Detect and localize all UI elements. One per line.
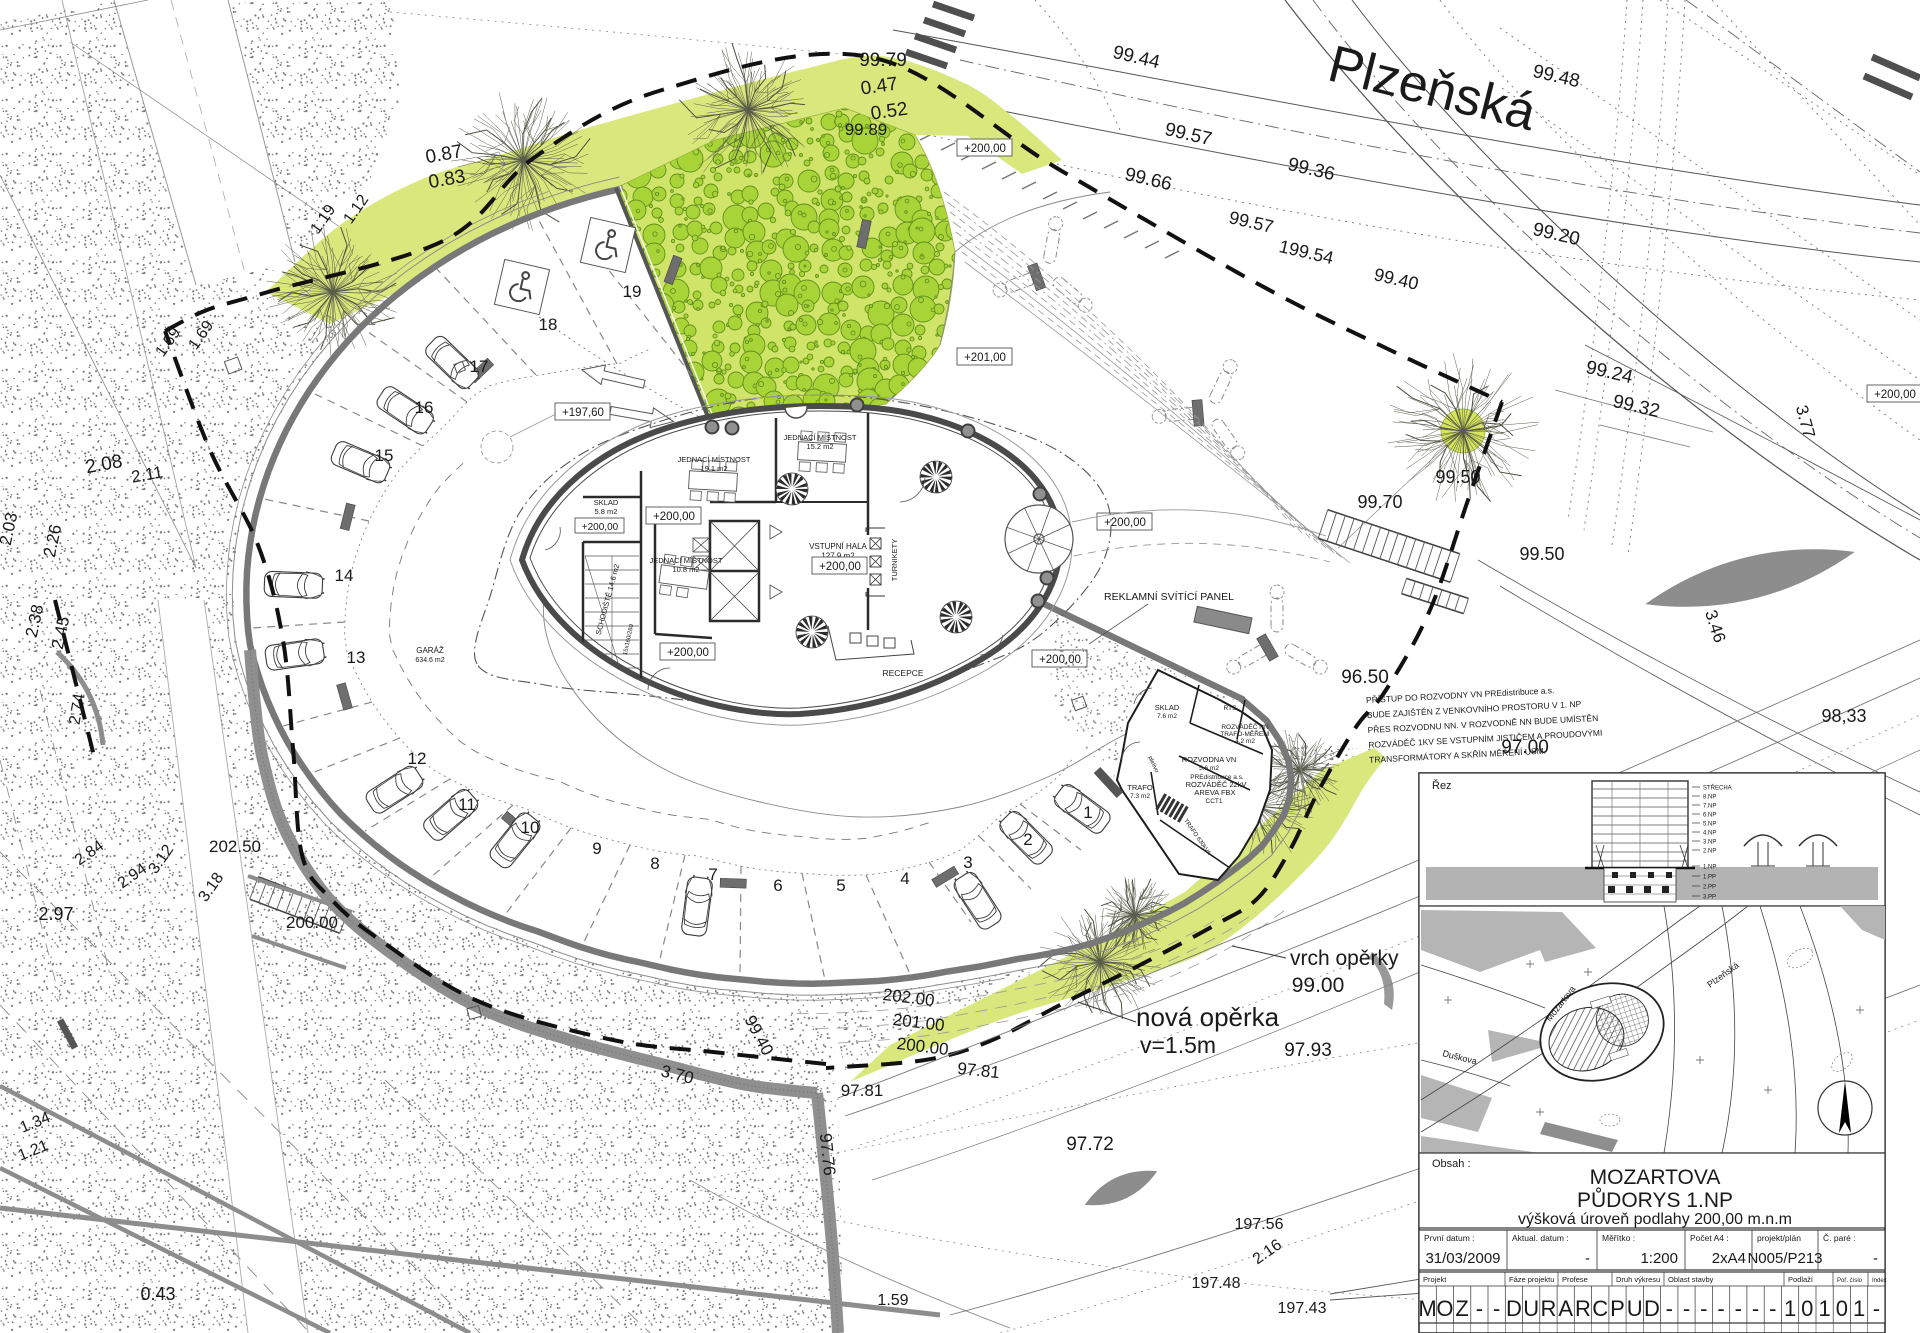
svg-text:19: 19 xyxy=(623,282,642,301)
svg-text:1: 1 xyxy=(1853,1296,1865,1321)
svg-text:+200,00: +200,00 xyxy=(964,143,1006,155)
svg-text:-: - xyxy=(1735,1296,1742,1321)
svg-text:+201,00: +201,00 xyxy=(964,352,1006,364)
svg-text:3: 3 xyxy=(963,853,972,872)
svg-text:96.50: 96.50 xyxy=(1341,667,1389,688)
svg-text:8: 8 xyxy=(650,854,659,873)
svg-text:1.NP: 1.NP xyxy=(1703,865,1716,871)
svg-text:98,33: 98,33 xyxy=(1821,706,1866,726)
svg-text:JEDNACÍ MÍSTNOST: JEDNACÍ MÍSTNOST xyxy=(784,433,857,442)
svg-text:7.6 m2: 7.6 m2 xyxy=(1157,713,1177,720)
svg-text:97.72: 97.72 xyxy=(1066,1134,1114,1155)
svg-text:Podlaží: Podlaží xyxy=(1788,1275,1814,1284)
svg-text:TRAFO: TRAFO xyxy=(1127,783,1153,792)
svg-text:634.6 m2: 634.6 m2 xyxy=(415,657,444,664)
svg-text:C: C xyxy=(1592,1296,1608,1321)
svg-text:ROZVODNA VN: ROZVODNA VN xyxy=(1182,755,1237,764)
svg-text:ROZVÁDĚČ NN: ROZVÁDĚČ NN xyxy=(1221,722,1269,731)
svg-text:PŮDORYS 1.NP: PŮDORYS 1.NP xyxy=(1577,1188,1733,1212)
svg-text:0: 0 xyxy=(1836,1296,1848,1321)
svg-text:200.00: 200.00 xyxy=(286,913,338,932)
svg-text:D: D xyxy=(1644,1296,1660,1321)
svg-text:5.8 m2: 5.8 m2 xyxy=(595,507,618,516)
svg-text:N005/P213: N005/P213 xyxy=(1747,1250,1822,1267)
svg-text:-: - xyxy=(1873,1250,1878,1267)
svg-text:4.2 m2: 4.2 m2 xyxy=(1235,738,1255,745)
svg-text:Profese: Profese xyxy=(1562,1275,1588,1284)
svg-text:31/03/2009: 31/03/2009 xyxy=(1425,1250,1500,1267)
svg-text:REKLAMNÍ SVÍTÍCÍ PANEL: REKLAMNÍ SVÍTÍCÍ PANEL xyxy=(1104,590,1234,603)
svg-text:P: P xyxy=(1610,1296,1625,1321)
svg-text:99.70: 99.70 xyxy=(1357,492,1402,512)
svg-text:1: 1 xyxy=(1818,1296,1830,1321)
svg-text:-: - xyxy=(1769,1296,1776,1321)
svg-text:197.43: 197.43 xyxy=(1278,1300,1327,1317)
svg-text:projekt/plán: projekt/plán xyxy=(1757,1233,1801,1243)
svg-text:7: 7 xyxy=(708,865,717,884)
svg-text:-: - xyxy=(1585,1250,1590,1267)
svg-text:TRAFO-MĚŘENÍ: TRAFO-MĚŘENÍ xyxy=(1220,729,1270,738)
svg-text:A: A xyxy=(1558,1296,1573,1321)
svg-text:1.59: 1.59 xyxy=(877,1292,908,1309)
svg-text:7.NP: 7.NP xyxy=(1703,804,1716,810)
svg-text:MOZARTOVA: MOZARTOVA xyxy=(1590,1166,1721,1189)
svg-text:M: M xyxy=(1418,1296,1436,1321)
svg-text:AREVA FBX: AREVA FBX xyxy=(1194,788,1235,797)
svg-text:+197,60: +197,60 xyxy=(562,407,604,419)
svg-text:+200,00: +200,00 xyxy=(819,561,861,573)
svg-text:202.50: 202.50 xyxy=(209,837,261,856)
svg-text:1: 1 xyxy=(1784,1296,1796,1321)
svg-text:Měřítko :: Měřítko : xyxy=(1602,1233,1635,1243)
svg-text:1.PP: 1.PP xyxy=(1703,875,1716,881)
svg-text:0.43: 0.43 xyxy=(140,1284,175,1304)
svg-text:výšková úroveň podlahy 200,00: výšková úroveň podlahy 200,00 m.n.m xyxy=(1518,1211,1792,1228)
svg-text:Počet A4 :: Počet A4 : xyxy=(1690,1233,1729,1243)
svg-text:3.PP: 3.PP xyxy=(1703,895,1716,901)
svg-text:4: 4 xyxy=(900,869,909,888)
svg-text:9: 9 xyxy=(592,839,601,858)
svg-text:-: - xyxy=(1700,1296,1707,1321)
svg-text:Z: Z xyxy=(1455,1296,1468,1321)
svg-text:Druh výkresu: Druh výkresu xyxy=(1616,1275,1660,1284)
svg-text:99.50: 99.50 xyxy=(1519,544,1564,564)
svg-text:Oblast stavby: Oblast stavby xyxy=(1668,1275,1714,1284)
svg-text:197.56: 197.56 xyxy=(1235,1216,1284,1233)
svg-text:Obsah :: Obsah : xyxy=(1432,1158,1471,1170)
svg-text:Fáze projektu: Fáze projektu xyxy=(1509,1275,1554,1284)
svg-text:1: 1 xyxy=(1083,803,1092,822)
svg-text:JEDNACÍ MÍSTNOST: JEDNACÍ MÍSTNOST xyxy=(678,455,751,464)
svg-text:10: 10 xyxy=(521,818,540,837)
svg-text:-: - xyxy=(1666,1296,1673,1321)
svg-text:D: D xyxy=(1506,1296,1522,1321)
svg-text:97.81: 97.81 xyxy=(841,1081,884,1100)
svg-text:-: - xyxy=(1873,1296,1880,1321)
svg-text:2.NP: 2.NP xyxy=(1703,849,1716,855)
svg-text:15: 15 xyxy=(375,446,394,465)
svg-text:+200,00: +200,00 xyxy=(582,522,619,533)
svg-text:GARÁŽ: GARÁŽ xyxy=(416,646,444,655)
svg-text:Aktual. datum :: Aktual. datum : xyxy=(1512,1233,1569,1243)
svg-text:R: R xyxy=(1540,1296,1556,1321)
svg-text:11: 11 xyxy=(458,795,476,814)
svg-text:-: - xyxy=(1717,1296,1724,1321)
svg-text:STŘECHA: STŘECHA xyxy=(1703,784,1732,792)
svg-text:2xA4: 2xA4 xyxy=(1712,1250,1746,1267)
svg-text:TURNIKETY: TURNIKETY xyxy=(890,539,899,582)
svg-text:99.79: 99.79 xyxy=(859,50,907,71)
svg-text:4.NP: 4.NP xyxy=(1703,831,1716,837)
svg-text:+200,00: +200,00 xyxy=(1104,517,1146,529)
svg-text:18: 18 xyxy=(539,315,558,334)
svg-text:19.1 m2: 19.1 m2 xyxy=(700,464,727,473)
svg-text:-: - xyxy=(1752,1296,1759,1321)
svg-text:99.89: 99.89 xyxy=(845,120,888,139)
svg-text:3.NP: 3.NP xyxy=(1703,840,1716,846)
svg-text:12: 12 xyxy=(408,749,427,768)
svg-text:CCT1: CCT1 xyxy=(1206,798,1223,805)
svg-text:-: - xyxy=(1493,1296,1500,1321)
svg-text:nová opěrka: nová opěrka xyxy=(1136,1002,1280,1032)
svg-text:+200,00: +200,00 xyxy=(667,647,709,659)
svg-text:6: 6 xyxy=(773,876,782,895)
svg-text:Projekt: Projekt xyxy=(1423,1275,1447,1284)
svg-text:RECEPCE: RECEPCE xyxy=(882,668,923,678)
svg-text:1:200: 1:200 xyxy=(1640,1250,1678,1267)
svg-text:+200,00: +200,00 xyxy=(1874,389,1916,401)
svg-text:RTS: RTS xyxy=(1224,705,1238,712)
svg-text:První datum :: První datum : xyxy=(1424,1233,1475,1243)
svg-text:O: O xyxy=(1436,1296,1453,1321)
svg-text:7.3 m2: 7.3 m2 xyxy=(1130,793,1150,800)
svg-text:16: 16 xyxy=(415,398,434,417)
svg-text:SKLAD: SKLAD xyxy=(1155,703,1180,712)
svg-text:U: U xyxy=(1523,1296,1539,1321)
svg-text:99.00: 99.00 xyxy=(1292,974,1345,997)
svg-text:5.6 m2: 5.6 m2 xyxy=(1199,765,1219,772)
svg-text:197.48: 197.48 xyxy=(1192,1275,1241,1292)
svg-text:VSTUPNÍ HALA: VSTUPNÍ HALA xyxy=(809,542,867,551)
svg-text:10.8 m2: 10.8 m2 xyxy=(672,565,699,574)
svg-text:SKLAD: SKLAD xyxy=(594,498,619,507)
svg-text:97.93: 97.93 xyxy=(1284,1040,1332,1061)
svg-text:U: U xyxy=(1627,1296,1643,1321)
svg-text:2: 2 xyxy=(1023,830,1032,849)
svg-text:15.2 m2: 15.2 m2 xyxy=(806,442,833,451)
svg-text:JEDNACÍ MÍSTNOST: JEDNACÍ MÍSTNOST xyxy=(650,556,723,565)
svg-text:-: - xyxy=(1476,1296,1483,1321)
svg-text:14: 14 xyxy=(335,566,354,585)
svg-text:99.50: 99.50 xyxy=(1435,467,1480,487)
svg-text:0: 0 xyxy=(1801,1296,1813,1321)
svg-text:vrch opěrky: vrch opěrky xyxy=(1290,947,1399,970)
svg-text:Č. paré :: Č. paré : xyxy=(1823,1233,1856,1243)
svg-text:Poř. číslo: Poř. číslo xyxy=(1837,1278,1863,1284)
svg-text:+200,00: +200,00 xyxy=(653,511,695,523)
svg-text:8.NP: 8.NP xyxy=(1703,795,1716,801)
svg-text:R: R xyxy=(1575,1296,1591,1321)
svg-text:Řez: Řez xyxy=(1432,779,1452,792)
svg-text:-: - xyxy=(1683,1296,1690,1321)
svg-text:6.NP: 6.NP xyxy=(1703,813,1716,819)
svg-text:v=1.5m: v=1.5m xyxy=(1140,1032,1216,1058)
svg-text:5.NP: 5.NP xyxy=(1703,822,1716,828)
svg-text:17: 17 xyxy=(470,357,489,376)
svg-text:13: 13 xyxy=(347,648,366,667)
svg-text:5: 5 xyxy=(836,876,845,895)
svg-text:Index: Index xyxy=(1872,1278,1887,1284)
svg-text:2.97: 2.97 xyxy=(38,904,73,924)
svg-text:2.PP: 2.PP xyxy=(1703,885,1716,891)
